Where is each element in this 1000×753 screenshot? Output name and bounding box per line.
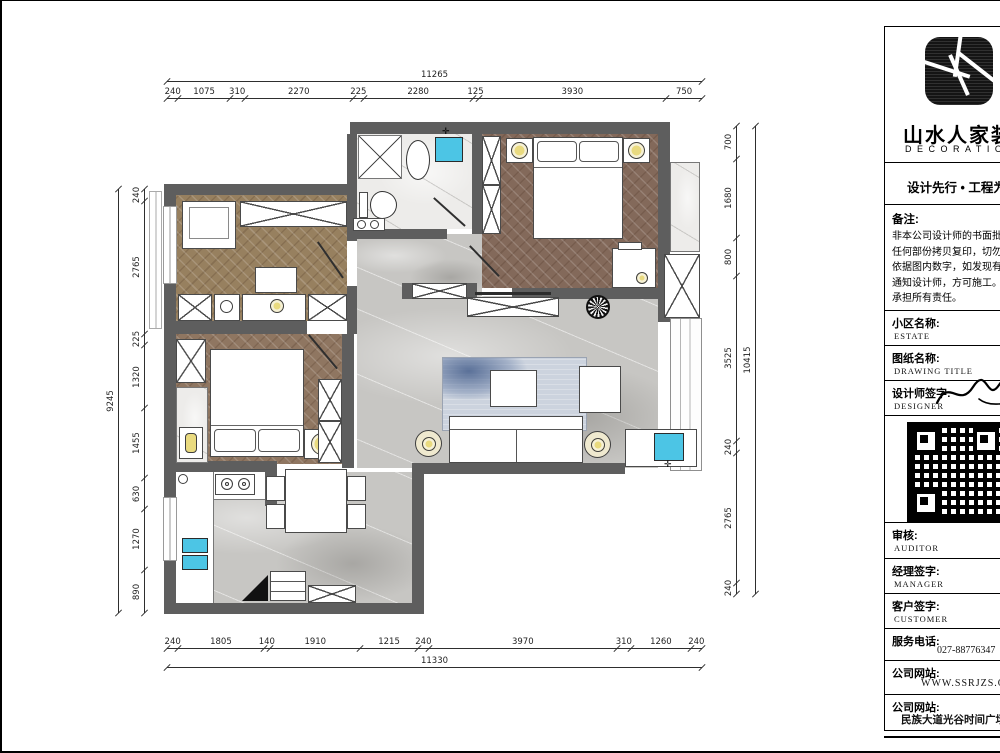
washer-knob-icon xyxy=(370,220,379,229)
drawing-sheet: ✛ ✛ xyxy=(0,0,1000,753)
logo-section: 山水人家装饰 DECORATION xyxy=(885,27,1000,162)
wardrobe xyxy=(318,379,342,421)
faucet-icon: ✛ xyxy=(442,126,450,137)
laundry-sink xyxy=(654,433,684,461)
pillow xyxy=(258,429,300,452)
qr-section xyxy=(885,415,1000,522)
kitchen-sink xyxy=(182,555,208,570)
wall xyxy=(164,603,424,614)
chair xyxy=(347,476,366,501)
field-address: 公司网站: 民族大道光谷时间广场16楼 xyxy=(885,694,1000,730)
field-website: 公司网站: WWW.SSRJZS.COM xyxy=(885,660,1000,694)
brand-subtitle: DECORATION xyxy=(905,144,1000,154)
master-wardrobe xyxy=(482,185,501,234)
cabinet xyxy=(308,585,356,603)
drawers xyxy=(270,571,306,601)
company-logo-icon xyxy=(925,37,993,105)
field-estate: 小区名称: ESTATE xyxy=(885,310,1000,345)
wall xyxy=(347,321,357,334)
notes-label: 备注: xyxy=(892,211,919,227)
cabinet xyxy=(308,294,347,321)
armchair xyxy=(579,366,621,413)
field-manager: 经理签字: MANAGER xyxy=(885,558,1000,593)
sofa-split-line xyxy=(516,430,517,462)
website-url: WWW.SSRJZS.COM xyxy=(921,678,1000,689)
door-swing-dark xyxy=(242,575,268,601)
field-phone: 服务电话: 027-88776347 xyxy=(885,628,1000,660)
faucet-icon: ✛ xyxy=(664,459,672,470)
chair xyxy=(266,504,285,529)
blanket-line xyxy=(211,425,303,426)
master-wardrobe xyxy=(482,136,501,185)
qr-code xyxy=(907,422,1000,522)
title-block: 山水人家装饰 DECORATION 设计先行 • 工程为本 备注: 非本公司设计… xyxy=(884,26,1000,731)
window xyxy=(163,206,177,284)
daybed-cushion xyxy=(189,207,229,239)
window xyxy=(163,497,177,561)
hall-cabinet xyxy=(412,283,467,299)
shelf xyxy=(618,242,642,250)
chair xyxy=(347,504,366,529)
toilet-tank xyxy=(359,192,368,218)
pillow xyxy=(537,141,577,162)
washbasin xyxy=(435,137,463,162)
hook-icon xyxy=(178,474,188,484)
desk xyxy=(612,248,656,288)
bay-window-master xyxy=(670,162,700,252)
wall xyxy=(164,321,307,334)
shower xyxy=(358,135,402,179)
notes-section: 备注: 非本公司设计师的书面批准，不得将 任何部份拷贝复印，切勿比例量度， 依据… xyxy=(885,204,1000,310)
chair xyxy=(266,476,285,501)
lamp xyxy=(628,142,645,159)
pillow xyxy=(579,141,619,162)
company-address: 民族大道光谷时间广场16楼 xyxy=(901,712,1000,727)
coffee-table xyxy=(490,370,537,407)
cabinet xyxy=(176,339,206,383)
lamp xyxy=(636,272,648,284)
wall xyxy=(472,134,482,234)
field-customer: 客户签字: CUSTOMER xyxy=(885,593,1000,628)
notes-text: 非本公司设计师的书面批准，不得将 任何部份拷贝复印，切勿比例量度， 依据图内数字… xyxy=(892,229,1000,307)
pillow xyxy=(214,429,256,452)
lamp xyxy=(511,142,528,159)
wall xyxy=(412,463,625,474)
cabinet xyxy=(178,294,212,321)
exterior-window-lines xyxy=(149,191,162,329)
floor-plan: ✛ ✛ xyxy=(2,1,882,751)
phone-number: 027-88776347 xyxy=(937,645,995,656)
wall xyxy=(342,334,354,468)
wardrobe xyxy=(240,201,347,227)
kitchen-sink xyxy=(182,538,208,553)
blanket-line xyxy=(534,167,622,168)
side-table xyxy=(255,267,297,293)
closet-right xyxy=(664,254,700,318)
tv xyxy=(475,292,551,295)
wall xyxy=(412,468,424,614)
lamp xyxy=(270,299,284,313)
wardrobe xyxy=(318,421,342,463)
wall xyxy=(174,184,357,195)
wall xyxy=(350,122,670,134)
title-block-underline xyxy=(884,736,1000,738)
pedestal-sink xyxy=(406,140,430,180)
field-designer: 设计师签字: DESIGNER xyxy=(885,380,1000,415)
burner-icon xyxy=(221,478,233,490)
appliance-door-icon xyxy=(220,300,233,313)
designer-signature xyxy=(929,369,1000,415)
lamp xyxy=(185,433,197,453)
wall xyxy=(402,283,412,299)
lamp xyxy=(422,437,436,451)
lamp xyxy=(591,438,605,452)
burner-icon xyxy=(238,478,250,490)
slogan-text: 设计先行 • 工程为本 xyxy=(907,177,1000,196)
wall xyxy=(347,134,357,184)
washer-knob-icon xyxy=(357,220,366,229)
field-auditor: 审核: AUDITOR xyxy=(885,522,1000,558)
slogan-section: 设计先行 • 工程为本 xyxy=(885,162,1000,204)
dining-table xyxy=(285,469,347,533)
plant xyxy=(586,295,610,319)
tv-cabinet xyxy=(467,297,559,317)
